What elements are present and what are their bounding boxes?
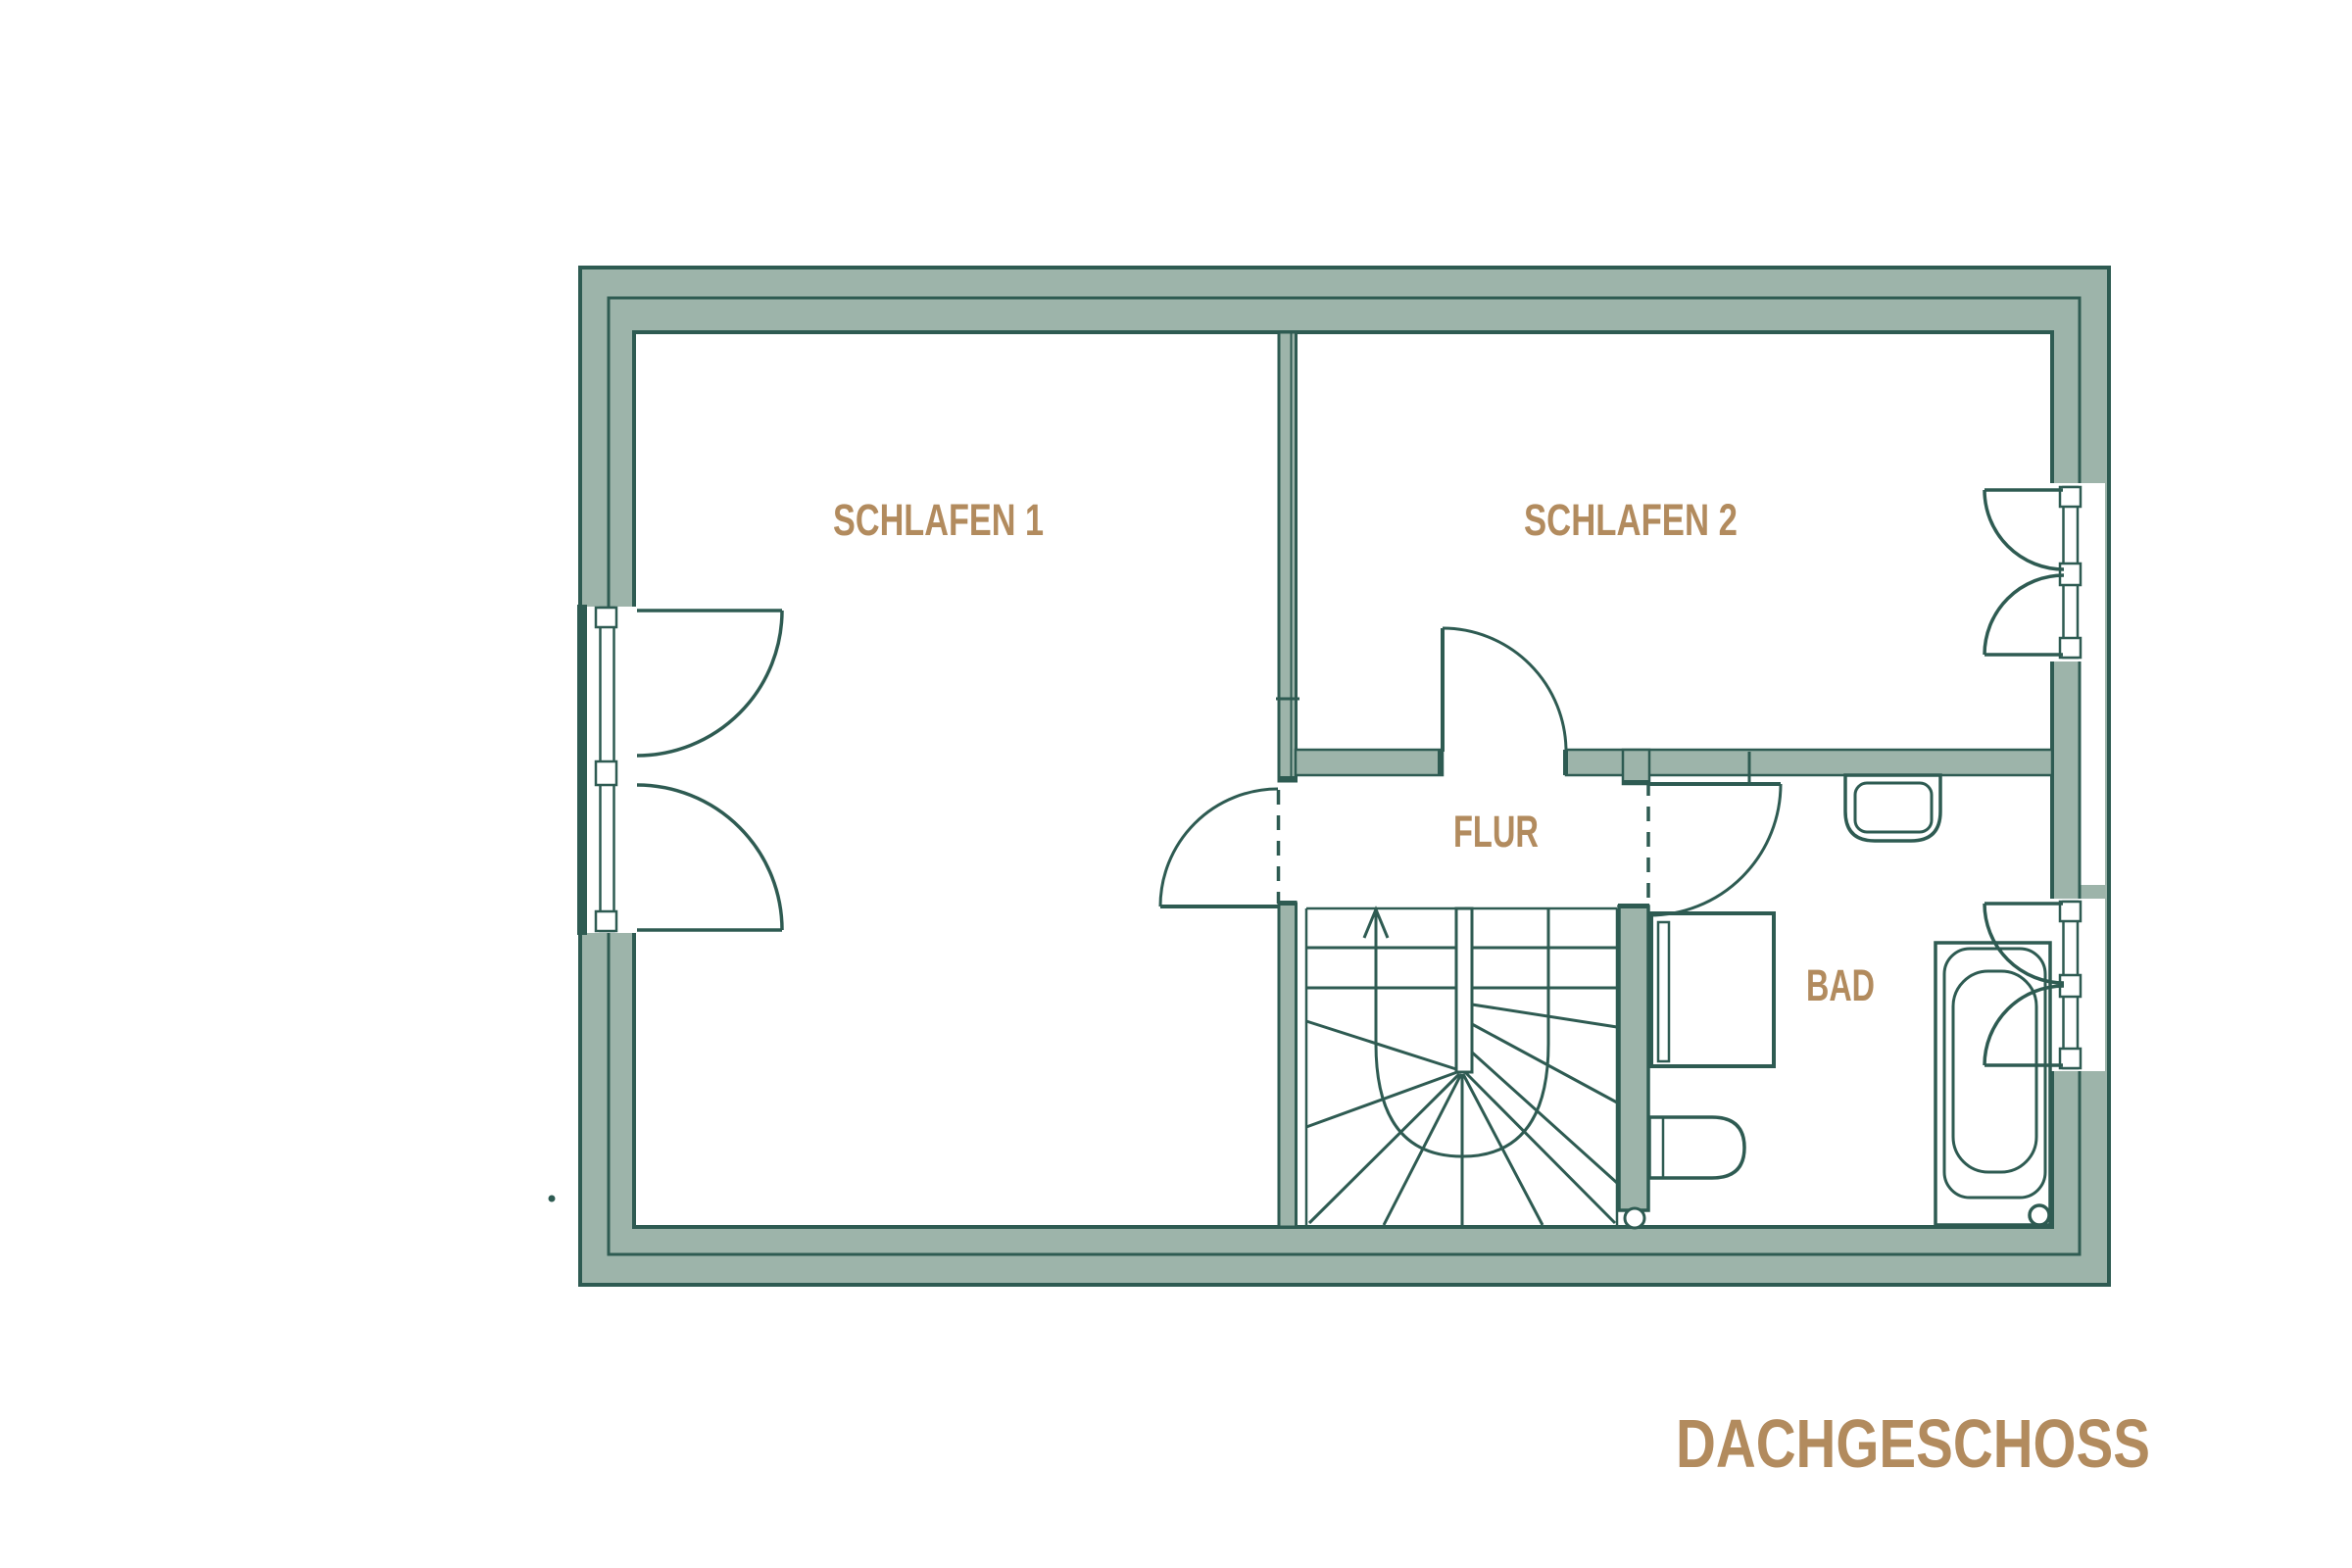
room-label-bad: BAD (1806, 960, 1875, 1010)
window-schlafen2-frame (2060, 487, 2081, 658)
room-label-schlafen-2: SCHLAFEN 2 (1524, 495, 1738, 545)
bathtub (1935, 943, 2050, 1225)
print-artifact-dot (549, 1196, 556, 1202)
floor-plan-drawing: SCHLAFEN 1 SCHLAFEN 2 FLUR BAD DACHGESCH… (0, 0, 2352, 1568)
toilet (1649, 1117, 1744, 1178)
room-label-schlafen-1: SCHLAFEN 1 (833, 495, 1044, 545)
window-left (577, 605, 639, 935)
washbasin (1845, 775, 1940, 841)
stair-spine (1456, 908, 1472, 1072)
bathtub-drain (2030, 1205, 2049, 1225)
shower (1651, 913, 1774, 1066)
floor-plan-page: SCHLAFEN 1 SCHLAFEN 2 FLUR BAD DACHGESCH… (0, 0, 2352, 1568)
floor-title: DACHGESCHOSS (1676, 1405, 2150, 1482)
room-label-flur: FLUR (1453, 807, 1539, 857)
